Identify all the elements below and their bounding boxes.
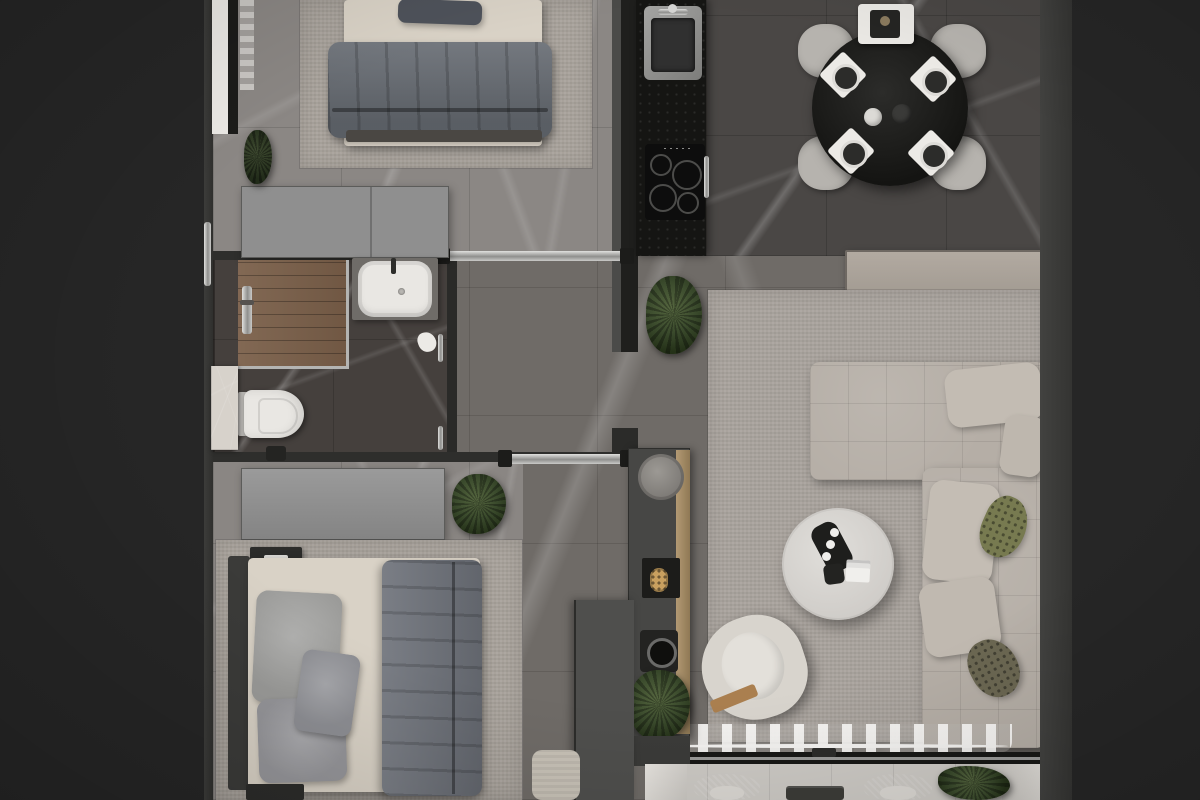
dining-plate-sw (840, 140, 868, 168)
bathroom-basin-drain (398, 288, 405, 295)
bathroom-door-handle-lower (438, 426, 443, 450)
tray-cup-2 (826, 540, 835, 549)
entry-door-handle-left (204, 222, 211, 286)
balcony-chair-right-cushion (880, 786, 916, 800)
balcony-chair-left-cushion (710, 786, 744, 800)
sliding-door-top-end-right (620, 248, 634, 264)
bathroom-toilet-seat-line (258, 398, 298, 434)
kitchen-faucet-knob (668, 4, 677, 13)
kitchen-sink-basin (651, 18, 695, 72)
dining-salt-cellar (864, 108, 882, 126)
dining-plate-ne (922, 68, 950, 96)
hall-floor-dark-strip (628, 736, 690, 766)
coffee-table-book (845, 559, 870, 582)
hall-speaker-ring (647, 638, 677, 668)
hall-console-round-tray (638, 454, 684, 500)
living-window-glass-line (656, 757, 1040, 760)
bedroom1-wardrobe (241, 186, 449, 258)
kitchen-cabinet-handle (704, 156, 709, 198)
dining-pepper-mill (892, 104, 912, 124)
window-frame-bedroom1 (228, 0, 238, 134)
cooktop-ring-2 (672, 160, 702, 190)
bedroom2-pillow-small (293, 648, 362, 737)
bathroom-marble-shelf (211, 366, 238, 450)
balcony-sill-left (645, 764, 687, 800)
bathroom-shower-floor (238, 260, 349, 369)
balcony-side-table (786, 786, 844, 800)
bedroom2-wardrobe (241, 468, 445, 540)
wall-bathroom-right (447, 256, 457, 460)
hall-gold-remote (650, 568, 668, 592)
cooktop-ring-3 (649, 184, 677, 212)
bedroom2-duvet (382, 560, 482, 796)
bedroom2-duvet-crease (452, 562, 455, 794)
bedroom1-pillow (398, 0, 483, 25)
cooktop-indicator-dots (662, 147, 692, 150)
coffee-table-remote-box (823, 563, 846, 586)
bathroom-door-handle-upper (438, 334, 443, 362)
sliding-door-top-track (442, 251, 628, 261)
dining-plate-se (920, 142, 948, 170)
bathroom-waste-bin (266, 446, 286, 461)
bedroom1-bed-footboard (346, 130, 542, 142)
dining-coffee-maker-knob (880, 16, 890, 26)
bedroom2-nightstand-bottom (246, 784, 304, 800)
cooktop-ring-1 (650, 154, 672, 176)
bedroom1-blanket-fold (332, 108, 548, 112)
window-sill-bedroom1 (212, 0, 228, 134)
bathroom-shower-handle (240, 300, 254, 305)
bedroom2-headboard (228, 556, 250, 790)
entry-partition-wall (574, 600, 634, 800)
living-window-handle (812, 748, 836, 757)
tray-cup-3 (822, 552, 831, 561)
dining-plate-nw (832, 64, 860, 92)
bedroom1-blanket (328, 42, 552, 138)
apartment-floorplan-render (0, 0, 1200, 800)
wall-right (1040, 0, 1072, 800)
bathroom-faucet (391, 258, 396, 274)
sliding-door-mid-track (506, 454, 628, 464)
cooktop-ring-4 (677, 192, 699, 214)
curtain-bedroom1 (240, 0, 254, 90)
wall-kitchen-hall (612, 0, 638, 352)
entry-doormat (532, 750, 580, 800)
bathroom-shower-column (242, 286, 252, 334)
sliding-door-mid-end-left (498, 450, 512, 467)
